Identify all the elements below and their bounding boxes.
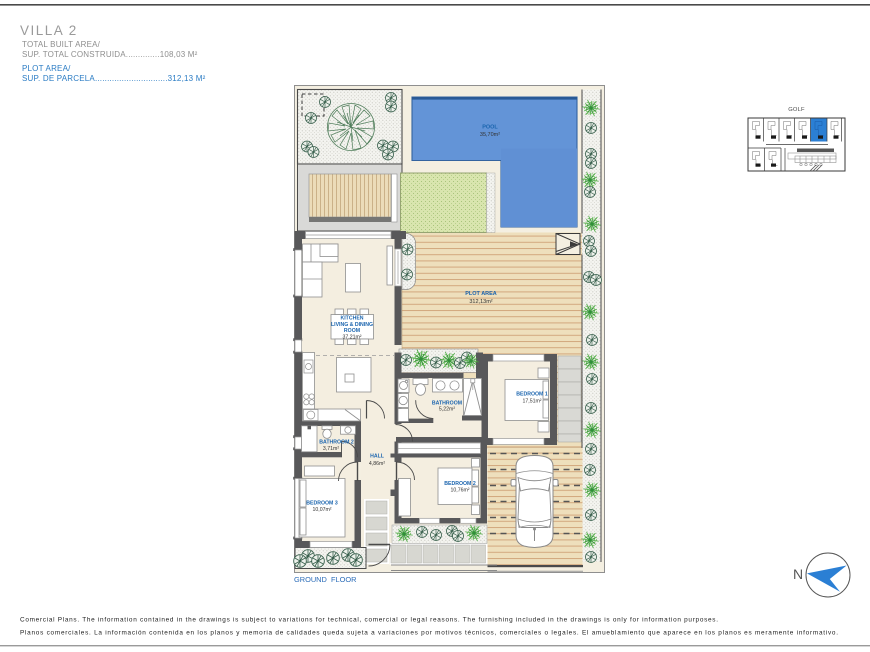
svg-text:VILLA 2: VILLA 2 [20, 23, 78, 38]
svg-text:4,86m²: 4,86m² [369, 461, 385, 467]
svg-text:Comercial Plans. The informati: Comercial Plans. The information contain… [20, 617, 718, 624]
svg-text:POOL: POOL [482, 125, 498, 131]
svg-text:SUP. TOTAL CONSTRUIDA.........: SUP. TOTAL CONSTRUIDA..............108,0… [22, 50, 198, 59]
svg-text:SUP. DE PARCELA...............: SUP. DE PARCELA.........................… [22, 74, 206, 83]
svg-text:KITCHEN: KITCHEN [340, 316, 363, 322]
svg-text:37,21m²: 37,21m² [342, 335, 361, 341]
svg-text:Planos comerciales. La informa: Planos comerciales. La información conte… [20, 630, 838, 637]
svg-text:PLOT AREA/: PLOT AREA/ [22, 64, 71, 73]
svg-text:PLOT AREA: PLOT AREA [465, 291, 497, 297]
svg-text:HALL: HALL [370, 454, 385, 460]
svg-text:5,22m²: 5,22m² [439, 407, 455, 413]
svg-text:BEDROOM 1: BEDROOM 1 [516, 392, 548, 398]
svg-text:3,71m²: 3,71m² [323, 446, 339, 452]
svg-text:TOTAL BUILT AREA/: TOTAL BUILT AREA/ [22, 40, 101, 49]
svg-text:BEDROOM 3: BEDROOM 3 [306, 501, 338, 507]
svg-text:312,13m²: 312,13m² [469, 299, 492, 305]
svg-text:GROUND FLOOR: GROUND FLOOR [294, 575, 356, 584]
svg-text:N: N [793, 566, 803, 582]
svg-text:LIVING & DINING: LIVING & DINING [331, 322, 373, 328]
svg-text:17,51m²: 17,51m² [522, 399, 541, 405]
svg-text:BEDROOM 2: BEDROOM 2 [444, 481, 476, 487]
svg-text:10,07m²: 10,07m² [312, 507, 331, 513]
svg-text:35,70m²: 35,70m² [480, 132, 500, 138]
svg-text:GOLF: GOLF [788, 107, 805, 113]
svg-text:10,76m²: 10,76m² [450, 488, 469, 494]
svg-text:ROOM: ROOM [344, 328, 360, 334]
svg-text:BATHROOM 2: BATHROOM 2 [319, 440, 354, 446]
